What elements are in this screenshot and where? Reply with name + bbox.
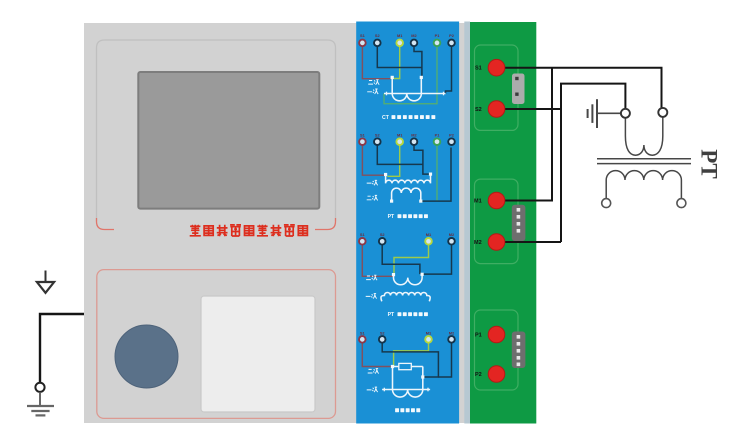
svg-text:S2: S2 — [475, 107, 482, 113]
svg-text:S2: S2 — [375, 33, 381, 38]
svg-text:PT: PT — [697, 149, 722, 178]
svg-text:P2: P2 — [449, 133, 455, 138]
svg-text:S2: S2 — [380, 331, 386, 336]
svg-text:M1: M1 — [426, 232, 432, 237]
svg-text:M2: M2 — [449, 331, 455, 336]
svg-text:CT: CT — [382, 115, 390, 121]
svg-text:S2: S2 — [380, 232, 386, 237]
svg-text:S1: S1 — [360, 133, 366, 138]
svg-text:S1: S1 — [360, 33, 366, 38]
svg-text:S1: S1 — [360, 232, 366, 237]
svg-text:M2: M2 — [474, 240, 482, 246]
svg-text:S1: S1 — [475, 66, 482, 72]
svg-text:P1: P1 — [435, 33, 441, 38]
svg-text:PT: PT — [388, 312, 395, 318]
svg-text:M1: M1 — [397, 133, 403, 138]
svg-text:M1: M1 — [474, 199, 482, 205]
svg-text:P1: P1 — [435, 133, 441, 138]
svg-text:S1: S1 — [360, 331, 366, 336]
svg-text:P2: P2 — [449, 33, 455, 38]
svg-text:M1: M1 — [426, 331, 432, 336]
svg-text:PT: PT — [388, 214, 395, 220]
svg-text:M2: M2 — [449, 232, 455, 237]
svg-text:P2: P2 — [475, 372, 482, 378]
svg-text:P1: P1 — [475, 333, 482, 339]
svg-text:S2: S2 — [375, 133, 381, 138]
svg-text:M2: M2 — [411, 33, 417, 38]
svg-text:M1: M1 — [397, 33, 403, 38]
svg-text:M2: M2 — [411, 133, 417, 138]
